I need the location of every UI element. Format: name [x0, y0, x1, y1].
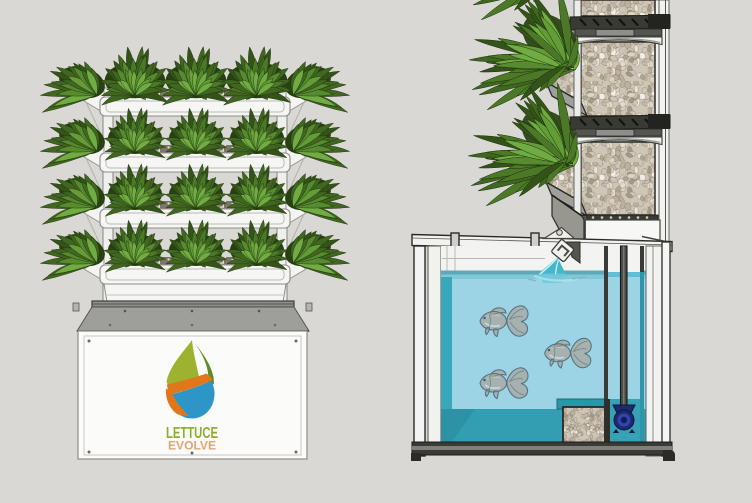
- svg-text:EVOLVE: EVOLVE: [168, 441, 216, 453]
- svg-text:LETTUCE: LETTUCE: [166, 425, 218, 442]
